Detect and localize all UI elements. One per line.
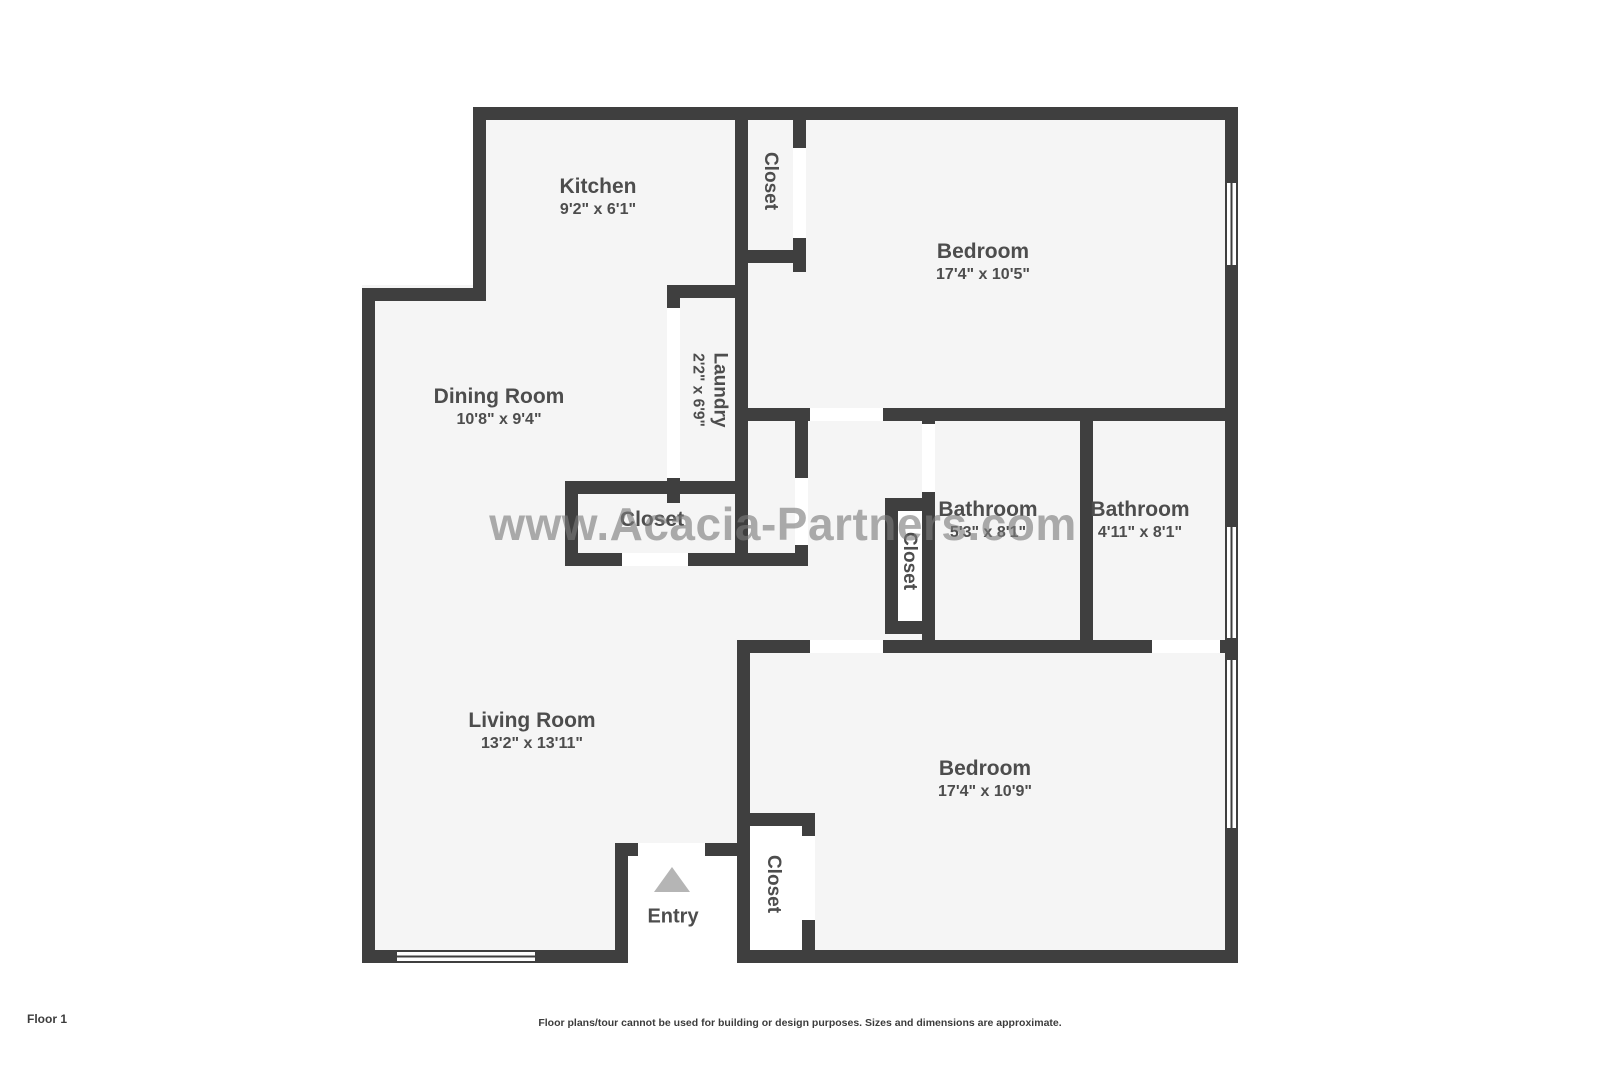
- room-name: Laundry: [708, 353, 732, 428]
- room-name: Bathroom: [1090, 497, 1189, 523]
- room-dimensions: 17'4" x 10'9": [938, 782, 1032, 802]
- room-label-bedroom-bottom: Bedroom 17'4" x 10'9": [938, 756, 1032, 802]
- door-opening: [922, 424, 935, 492]
- door-opening: [638, 843, 705, 856]
- wall: [705, 843, 737, 856]
- wall: [802, 920, 815, 963]
- room-dimensions: 10'8" x 9'4": [434, 410, 565, 430]
- room-label-bathroom-2: Bathroom 4'11" x 8'1": [1090, 497, 1189, 543]
- room-label-closet-bedroom: Closet: [761, 855, 785, 913]
- room-label-kitchen: Kitchen 9'2" x 6'1": [559, 174, 636, 220]
- window: [1225, 183, 1238, 265]
- floor-plan: Kitchen 9'2" x 6'1" Bedroom 17'4" x 10'5…: [0, 0, 1600, 1067]
- room-name: Bedroom: [936, 239, 1030, 265]
- wall: [565, 481, 748, 494]
- wall: [473, 107, 1238, 120]
- wall: [883, 408, 1238, 421]
- entry-direction-arrow-icon: [654, 867, 690, 892]
- room-name: Closet: [761, 855, 785, 913]
- wall: [667, 285, 680, 308]
- room-label-bedroom-top: Bedroom 17'4" x 10'5": [936, 239, 1030, 285]
- room-dimensions: 4'11" x 8'1": [1090, 523, 1189, 543]
- wall: [802, 826, 815, 836]
- door-opening: [802, 836, 815, 920]
- wall: [737, 640, 750, 963]
- room-name: Dining Room: [434, 384, 565, 410]
- door-opening: [1152, 640, 1220, 653]
- disclaimer-text: Floor plans/tour cannot be used for buil…: [538, 1017, 1061, 1029]
- wall: [922, 408, 935, 424]
- window: [1225, 527, 1238, 638]
- room-label-entry: Entry: [647, 906, 698, 929]
- room-label-laundry: Laundry 2'2" x 6'9": [688, 353, 731, 428]
- wall: [1220, 640, 1238, 653]
- door-opening: [667, 308, 680, 478]
- room-label-dining-room: Dining Room 10'8" x 9'4": [434, 384, 565, 430]
- room-dimensions: 17'4" x 10'5": [936, 265, 1030, 285]
- room-label-closet-top: Closet: [758, 152, 782, 210]
- wall: [885, 621, 935, 634]
- floor-plan-page: Kitchen 9'2" x 6'1" Bedroom 17'4" x 10'5…: [0, 0, 1600, 1067]
- room-label-living-room: Living Room 13'2" x 13'11": [468, 708, 595, 754]
- wall: [615, 843, 628, 963]
- room-name: Kitchen: [559, 174, 636, 200]
- wall: [735, 408, 810, 421]
- room-name: Bedroom: [938, 756, 1032, 782]
- room-dimensions: 2'2" x 6'9": [688, 353, 707, 428]
- window: [1225, 660, 1238, 828]
- wall: [748, 250, 806, 263]
- window: [397, 950, 535, 963]
- watermark: www.Acacia-Partners.com: [489, 497, 1077, 551]
- floor-selector-label: Floor 1: [27, 1012, 67, 1026]
- room-dimensions: 13'2" x 13'11": [468, 734, 595, 754]
- door-opening: [810, 640, 883, 653]
- wall: [473, 107, 486, 301]
- wall: [362, 288, 486, 301]
- room-name: Living Room: [468, 708, 595, 734]
- room-name: Closet: [758, 152, 782, 210]
- door-opening: [793, 148, 806, 238]
- wall: [362, 288, 375, 963]
- door-opening: [622, 553, 688, 566]
- wall: [883, 640, 1152, 653]
- wall: [793, 107, 806, 148]
- wall: [737, 813, 815, 826]
- door-opening: [810, 408, 883, 421]
- room-dimensions: 9'2" x 6'1": [559, 200, 636, 220]
